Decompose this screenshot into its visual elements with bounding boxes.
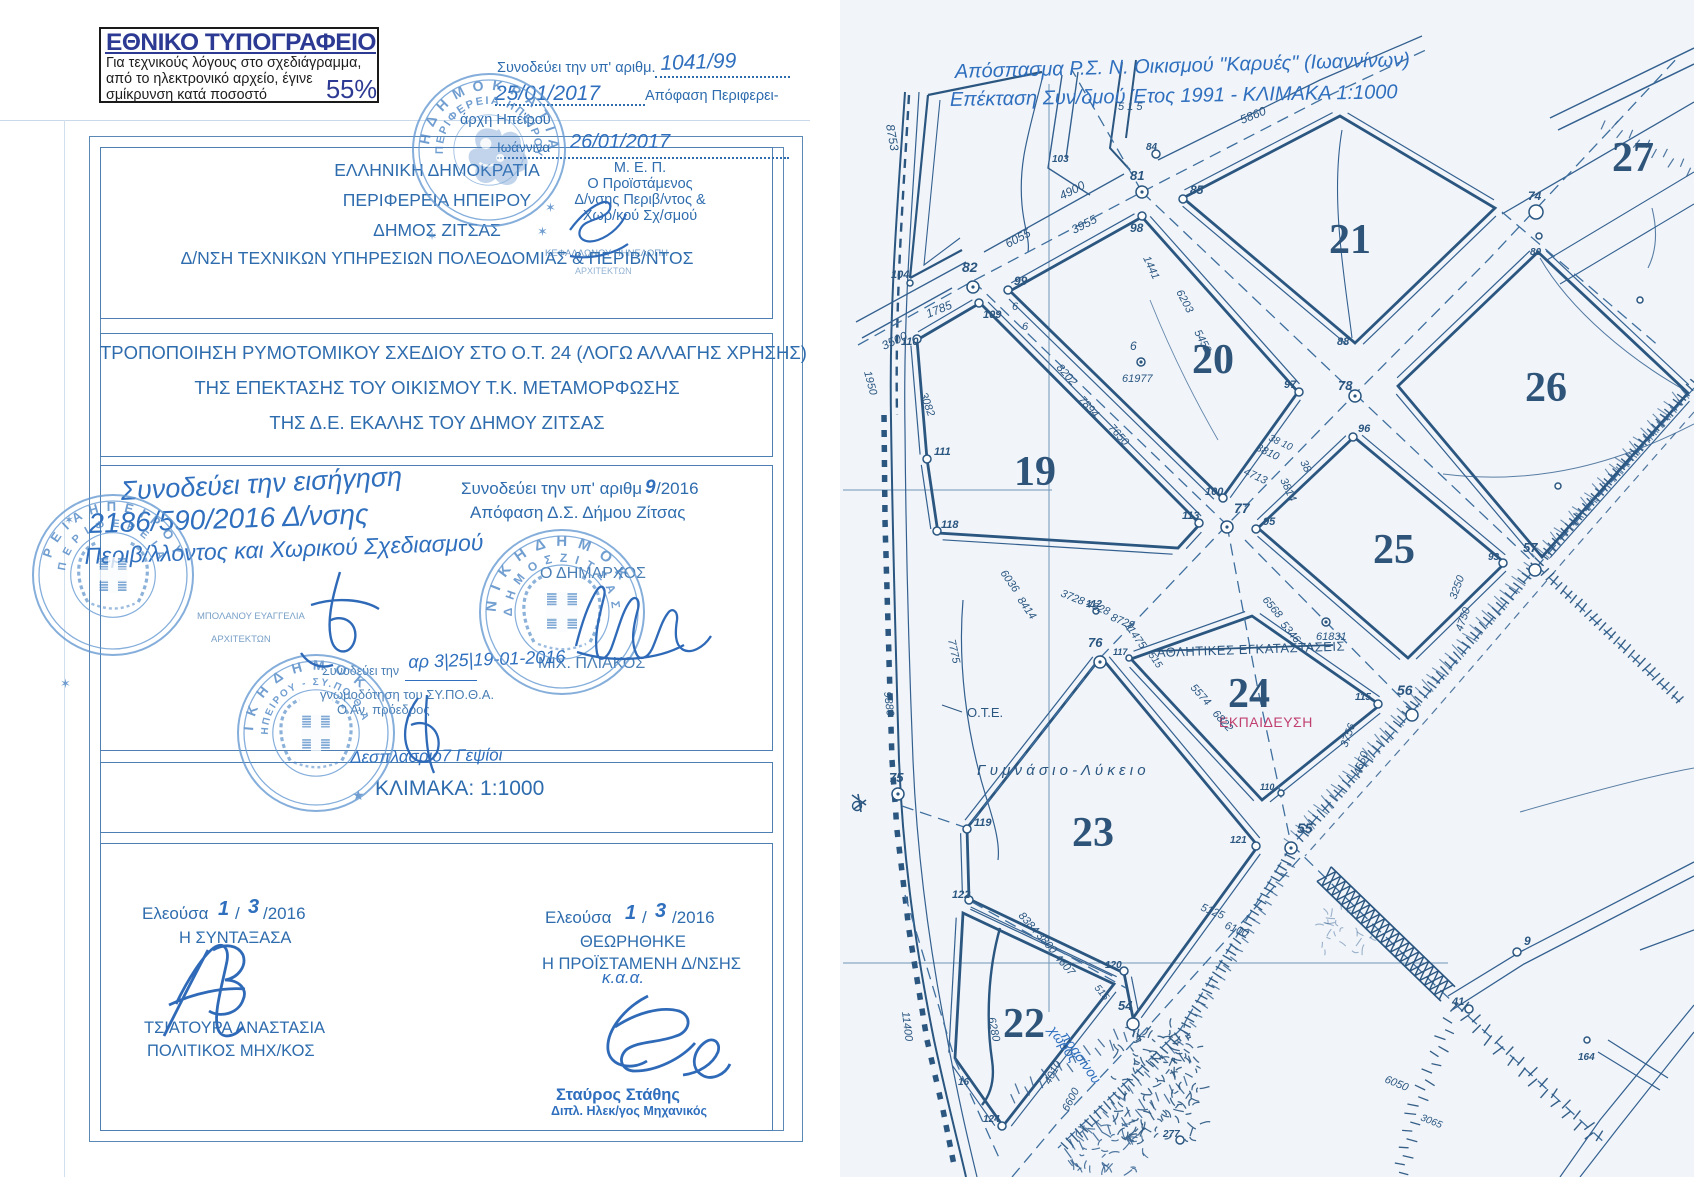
svg-text:81: 81 [1130,168,1144,183]
svg-text:97: 97 [1284,379,1297,391]
svg-text:✶: ✶ [545,200,556,215]
svg-text:54: 54 [1118,998,1133,1013]
svg-text:95: 95 [1263,516,1276,528]
svg-text:77: 77 [1234,500,1251,516]
svg-text:85: 85 [1190,183,1204,197]
svg-text:96: 96 [1358,423,1371,435]
svg-text:27: 27 [1612,135,1654,181]
svg-text:82: 82 [962,259,978,275]
svg-text:88: 88 [1337,336,1350,348]
svg-text:164: 164 [1578,1052,1595,1063]
svg-text:84: 84 [1146,142,1158,153]
svg-text:55: 55 [1297,820,1313,836]
svg-text:111: 111 [934,446,951,458]
svg-text:93: 93 [1488,552,1500,563]
svg-text:✶: ✶ [64,513,74,527]
svg-text:41: 41 [1451,996,1464,1008]
svg-text:✶: ✶ [60,676,71,691]
svg-text:98: 98 [1130,221,1144,235]
svg-text:120: 120 [1105,960,1122,971]
svg-text:22: 22 [1003,1001,1045,1047]
svg-text:121: 121 [1230,835,1247,846]
svg-text:277: 277 [1162,1129,1180,1140]
svg-text:25: 25 [1373,527,1415,573]
svg-text:5 1 5: 5 1 5 [1118,101,1143,113]
svg-text:118: 118 [941,519,959,531]
svg-text:103: 103 [1052,154,1069,165]
svg-text:21: 21 [1329,217,1371,263]
svg-text:56: 56 [1397,682,1413,698]
svg-text:75: 75 [889,770,904,785]
svg-text:99: 99 [1014,274,1028,288]
svg-text:6: 6 [1012,301,1019,313]
svg-text:74: 74 [1528,189,1542,203]
svg-text:6: 6 [1022,321,1029,333]
svg-text:61831: 61831 [1316,631,1347,643]
svg-text:9: 9 [1524,934,1531,948]
svg-text:Γ υ μ ν ά σ ι ο - Λ ύ κ ε ι ο: Γ υ μ ν ά σ ι ο - Λ ύ κ ε ι ο [977,762,1146,779]
svg-text:124: 124 [983,1114,1000,1125]
svg-text:16: 16 [958,1077,970,1088]
svg-text:★: ★ [352,787,365,803]
svg-text:119: 119 [974,817,992,829]
svg-text:100: 100 [1205,486,1224,498]
svg-text:109: 109 [983,309,1002,321]
svg-text:110: 110 [1260,782,1274,792]
svg-text:117: 117 [1113,647,1128,657]
svg-text:Ο.Τ.Ε.: Ο.Τ.Ε. [967,705,1003,720]
svg-text:19: 19 [1014,449,1056,495]
svg-text:26: 26 [1525,365,1567,411]
svg-text:76: 76 [1088,635,1103,650]
svg-text:23: 23 [1072,810,1114,856]
svg-text:✶: ✶ [537,224,548,239]
svg-text:✶: ✶ [427,229,437,243]
svg-text:115: 115 [1355,692,1371,703]
svg-text:6: 6 [1130,339,1137,353]
svg-text:78: 78 [1338,378,1353,393]
svg-text:57: 57 [1523,540,1538,555]
svg-text:80: 80 [1530,247,1542,258]
svg-text:122: 122 [952,889,970,901]
svg-text:113: 113 [1182,510,1200,522]
svg-text:61977: 61977 [1122,373,1153,385]
svg-text:24: 24 [1228,671,1270,717]
svg-text:104: 104 [891,269,909,281]
